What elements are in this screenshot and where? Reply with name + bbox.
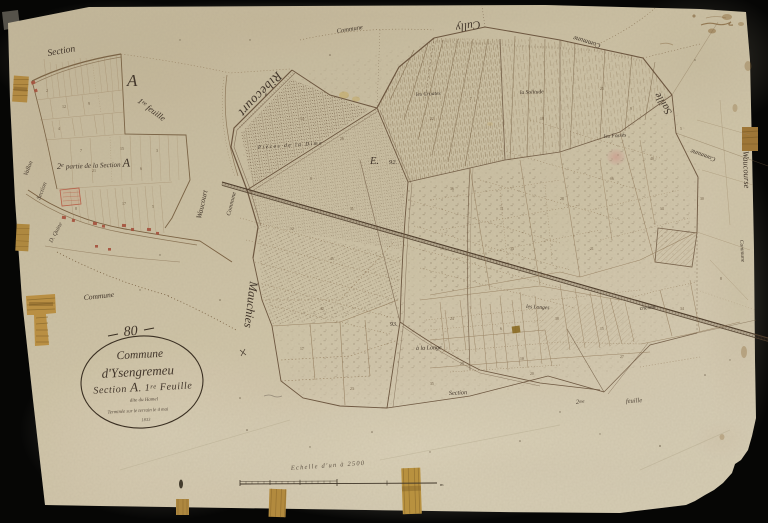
svg-text:45: 45: [330, 257, 334, 261]
svg-text:feuille: feuille: [626, 397, 643, 405]
svg-text:les Longes: les Longes: [526, 304, 550, 311]
svg-text:11: 11: [500, 207, 504, 211]
svg-text:3: 3: [156, 148, 158, 153]
svg-text:E.: E.: [369, 156, 379, 167]
svg-text:12: 12: [290, 227, 294, 231]
svg-text:7: 7: [80, 148, 82, 153]
svg-text:Section: Section: [449, 389, 468, 397]
svg-text:42: 42: [320, 307, 324, 311]
svg-text:Waucourse: Waucourse: [741, 151, 752, 189]
svg-text:92.: 92.: [389, 159, 398, 166]
svg-text:30: 30: [700, 197, 704, 201]
svg-text:36: 36: [450, 187, 454, 191]
svg-text:24: 24: [450, 317, 454, 321]
svg-text:à la Longe: à la Longe: [416, 345, 442, 352]
svg-text:6: 6: [500, 327, 502, 331]
svg-text:1833: 1833: [141, 417, 151, 423]
svg-text:7: 7: [470, 97, 472, 101]
svg-text:12: 12: [62, 104, 66, 109]
svg-text:15: 15: [600, 327, 604, 331]
svg-text:16: 16: [610, 177, 614, 181]
svg-text:23: 23: [350, 387, 354, 391]
svg-text:Commune: Commune: [116, 348, 163, 362]
svg-text:40: 40: [650, 157, 654, 161]
svg-text:33: 33: [510, 247, 514, 251]
svg-text:29: 29: [460, 362, 464, 366]
svg-text:15: 15: [120, 146, 124, 151]
svg-text:6: 6: [140, 166, 142, 171]
svg-text:17: 17: [300, 347, 304, 351]
svg-text:19: 19: [440, 247, 444, 251]
svg-text:27: 27: [620, 355, 624, 359]
svg-text:20: 20: [530, 372, 534, 376]
svg-text:18: 18: [540, 117, 544, 121]
svg-text:8: 8: [720, 277, 722, 281]
svg-text:la Solitude: la Solitude: [520, 89, 544, 96]
svg-text:A: A: [126, 71, 138, 90]
svg-text:17: 17: [122, 201, 126, 206]
svg-text:10: 10: [520, 357, 524, 361]
svg-text:4: 4: [58, 126, 60, 131]
svg-text:38: 38: [555, 317, 559, 321]
svg-text:35: 35: [430, 382, 434, 386]
svg-text:93.: 93.: [390, 322, 398, 328]
svg-text:14: 14: [300, 117, 304, 121]
svg-text:2: 2: [46, 88, 48, 93]
svg-text:9: 9: [88, 101, 90, 106]
svg-text:8: 8: [310, 177, 312, 181]
svg-text:5: 5: [680, 127, 682, 131]
svg-text:21: 21: [590, 247, 594, 251]
svg-text:31: 31: [350, 207, 354, 211]
svg-text:28: 28: [560, 197, 564, 201]
svg-text:9: 9: [630, 107, 632, 111]
svg-text:34: 34: [680, 307, 684, 311]
svg-text:22: 22: [430, 117, 434, 121]
svg-text:m: m: [440, 482, 444, 487]
svg-text:13: 13: [660, 207, 664, 211]
svg-text:25: 25: [600, 87, 604, 91]
svg-text:8: 8: [75, 206, 77, 211]
svg-text:5: 5: [152, 204, 154, 209]
svg-text:26: 26: [340, 137, 344, 141]
svg-text:21: 21: [92, 168, 96, 173]
